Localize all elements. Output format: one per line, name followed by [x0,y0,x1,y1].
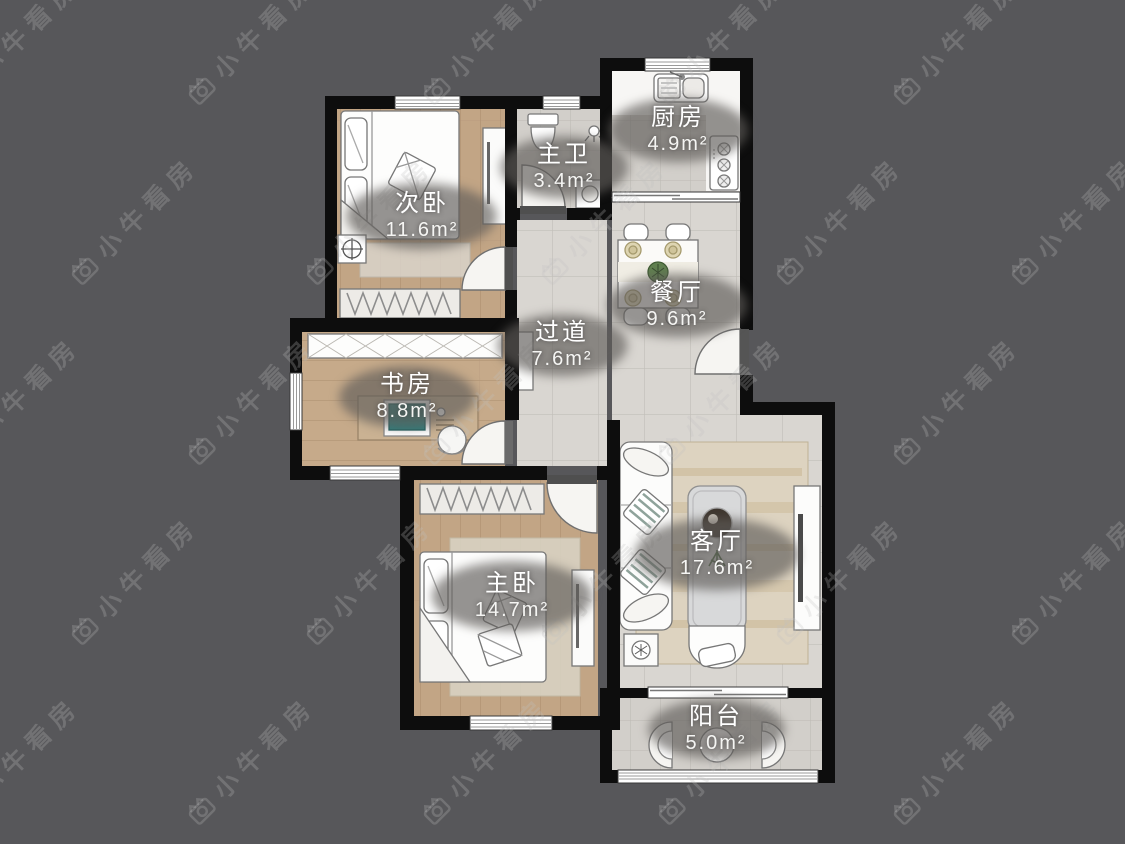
bed-master [420,552,546,682]
stove [710,136,738,190]
dresser [483,128,507,224]
dining-chair [624,308,648,325]
window [330,466,400,480]
balcony-railing [618,770,818,783]
wardrobe [340,289,460,318]
study-closet [308,334,502,358]
sofa [619,442,672,630]
side-table [624,634,658,666]
dining-chair [666,308,690,325]
master-wardrobe [420,484,544,514]
hallway-cabinet [517,332,533,390]
window [395,96,460,109]
sliding-door-kitchen [612,192,740,202]
floorplan-svg [0,0,1125,844]
coffee-table [688,486,746,632]
window [645,58,710,71]
rug [360,243,470,277]
window [470,716,552,730]
lounge-chair [689,626,745,668]
balcony-table [700,728,734,762]
mouse [437,408,445,416]
kitchen-sink [654,72,708,102]
office-chair [438,426,466,454]
tv [798,514,803,602]
master-dresser [572,570,594,666]
window [290,373,302,430]
sliding-door-balcony [648,687,788,698]
tv-console [794,486,820,630]
monitor [389,404,425,430]
dining-chair [666,224,690,241]
dining-chair [624,224,648,241]
window [543,96,580,109]
bed-secondary [341,111,459,239]
floorplan-canvas: 小牛看房小牛看房小牛看房小牛看房小牛看房小牛看房小牛看房小牛看房小牛看房小牛看房… [0,0,1125,844]
floor-drain-symbol [338,235,366,263]
